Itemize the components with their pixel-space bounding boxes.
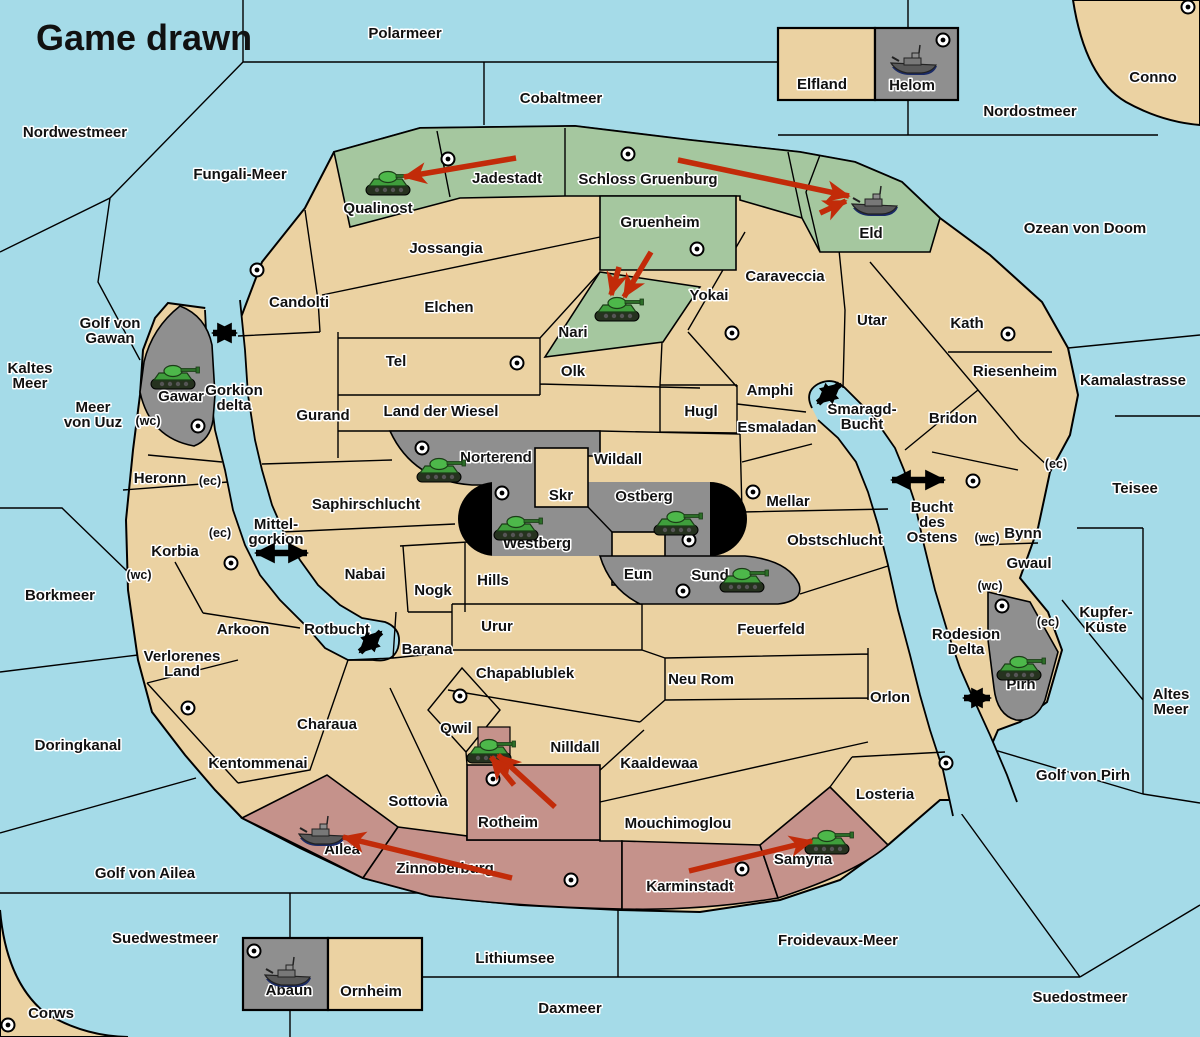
sea-label: Fungali-Meer — [193, 166, 287, 183]
region-label: Amphi — [747, 382, 794, 399]
region-label: Sund — [691, 567, 729, 584]
supply-center-dot — [691, 243, 704, 256]
sea-label: Nordwestmeer — [23, 124, 127, 141]
supply-center-dot — [747, 486, 760, 499]
region-label: Wildall — [594, 451, 642, 468]
sea-label: Teisee — [1112, 480, 1158, 497]
sea-label: Lithiumsee — [475, 950, 554, 967]
coast-label: (ec) — [1037, 615, 1059, 629]
sea-label: Suedwestmeer — [112, 930, 218, 947]
sea-label: KaltesMeer — [7, 360, 52, 392]
region-label: Ornheim — [340, 983, 402, 1000]
region-label: Eun — [624, 566, 652, 583]
region-label: Nari — [558, 324, 587, 341]
region-label: Arkoon — [217, 621, 270, 638]
region-label: Nabai — [345, 566, 386, 583]
region-label: Utar — [857, 312, 887, 329]
supply-center-dot — [442, 153, 455, 166]
region-label: Ostberg — [615, 488, 673, 505]
region-label: Gurand — [296, 407, 349, 424]
region-label: Urur — [481, 618, 513, 635]
region-label: Eld — [859, 225, 882, 242]
supply-center-dot — [622, 148, 635, 161]
region-label: Chapablublek — [476, 665, 575, 682]
supply-center-dot — [967, 475, 980, 488]
region-label: Tel — [386, 353, 407, 370]
sea-label: Ozean von Doom — [1024, 220, 1147, 237]
region-label: Elfland — [797, 76, 847, 93]
supply-center-dot — [736, 863, 749, 876]
sea-label: Mittel-gorkion — [249, 516, 304, 548]
supply-center-dot — [2, 1019, 15, 1032]
supply-center-dot — [565, 874, 578, 887]
region-label: Gruenheim — [620, 214, 699, 231]
region-label: Riesenheim — [973, 363, 1057, 380]
sea-label: Kupfer-Küste — [1079, 604, 1132, 636]
sea-label: Polarmeer — [368, 25, 442, 42]
supply-center-dot — [248, 945, 261, 958]
region-label: Jadestadt — [472, 170, 542, 187]
map-canvas: PolarmeerCobaltmeerNordostmeerOzean von … — [0, 0, 1200, 1037]
supply-center-dot — [937, 34, 950, 47]
coast-label: (wc) — [136, 414, 161, 428]
region-label: Mellar — [766, 493, 810, 510]
supply-center-dot — [251, 264, 264, 277]
coast-label: (ec) — [209, 526, 231, 540]
region-label: Olk — [561, 363, 586, 380]
region-label: Qwil — [440, 720, 472, 737]
region-label: Losteria — [856, 786, 915, 803]
region-label: Gwaul — [1006, 555, 1051, 572]
sea-label: Kamalastrasse — [1080, 372, 1186, 389]
sea-label: Froidevaux-Meer — [778, 932, 898, 949]
supply-center-dot — [940, 757, 953, 770]
region-label: Qualinost — [343, 200, 412, 217]
supply-center-dot — [182, 702, 195, 715]
supply-center-dot — [225, 557, 238, 570]
supply-center-dot — [1182, 1, 1195, 14]
coast-label: (ec) — [199, 474, 221, 488]
coast-label: (wc) — [127, 568, 152, 582]
region-label: Heronn — [134, 470, 187, 487]
supply-center-dot — [487, 773, 500, 786]
region-label: Candolti — [269, 294, 329, 311]
region-label: Saphirschlucht — [312, 496, 420, 513]
region-label: Jossangia — [409, 240, 483, 257]
region-label: Kentommenai — [208, 755, 307, 772]
game-map: PolarmeerCobaltmeerNordostmeerOzean von … — [0, 0, 1200, 1037]
map-title: Game drawn — [36, 17, 252, 58]
region-label: Charaua — [297, 716, 358, 733]
sea-label: Cobaltmeer — [520, 90, 603, 107]
sea-label: Rotbucht — [304, 621, 370, 638]
supply-center-dot — [496, 487, 509, 500]
region-label: Neu Rom — [668, 671, 734, 688]
coast-label: (ec) — [1045, 457, 1067, 471]
region-label: Hills — [477, 572, 509, 589]
region-label: Bridon — [929, 410, 977, 427]
region-label: Korbia — [151, 543, 199, 560]
supply-center-dot — [726, 327, 739, 340]
region-label: Obstschlucht — [787, 532, 883, 549]
region-label: Sottovia — [388, 793, 448, 810]
supply-center-dot — [996, 600, 1009, 613]
supply-center-dot — [192, 420, 205, 433]
sea-label: Daxmeer — [538, 1000, 602, 1017]
sea-label: Golf von Ailea — [95, 865, 196, 882]
region-label: Bynn — [1004, 525, 1042, 542]
supply-center-dot — [511, 357, 524, 370]
region-label: Hugl — [684, 403, 717, 420]
region-label: Yokai — [690, 287, 729, 304]
coast-label: (wc) — [975, 531, 1000, 545]
coast-label: (wc) — [978, 579, 1003, 593]
region-label: Helom — [889, 77, 935, 94]
region-label: Land der Wiesel — [384, 403, 499, 420]
region-label: Feuerfeld — [737, 621, 805, 638]
region-label: Corws — [28, 1005, 74, 1022]
region-label: Rotheim — [478, 814, 538, 831]
region-label: Karminstadt — [646, 878, 734, 895]
region-label: Nogk — [414, 582, 452, 599]
region-label: Conno — [1129, 69, 1176, 86]
region-label: Elchen — [424, 299, 473, 316]
region-label: Caraveccia — [745, 268, 825, 285]
sea-label: AltesMeer — [1153, 686, 1190, 718]
sea-label: Borkmeer — [25, 587, 95, 604]
supply-center-dot — [1002, 328, 1015, 341]
supply-center-dot — [677, 585, 690, 598]
region-label: Kaaldewaa — [620, 755, 698, 772]
region-label: Mouchimoglou — [625, 815, 732, 832]
sea-label: Suedostmeer — [1032, 989, 1127, 1006]
region-label: Schloss Gruenburg — [578, 171, 717, 188]
region-label: Esmaladan — [737, 419, 816, 436]
region-label: Gawar — [158, 388, 204, 405]
region-label: Nilldall — [550, 739, 599, 756]
sea-label: Nordostmeer — [983, 103, 1077, 120]
sea-label: Golf von Pirh — [1036, 767, 1130, 784]
region-label: Barana — [402, 641, 454, 658]
region-label: Skr — [549, 487, 573, 504]
supply-center-dot — [454, 690, 467, 703]
sea-label: Golf vonGawan — [80, 315, 141, 347]
supply-center-dot — [416, 442, 429, 455]
region-label: Orlon — [870, 689, 910, 706]
region-label: Kath — [950, 315, 983, 332]
sea-label: Doringkanal — [35, 737, 122, 754]
region-label: Norterend — [460, 449, 532, 466]
